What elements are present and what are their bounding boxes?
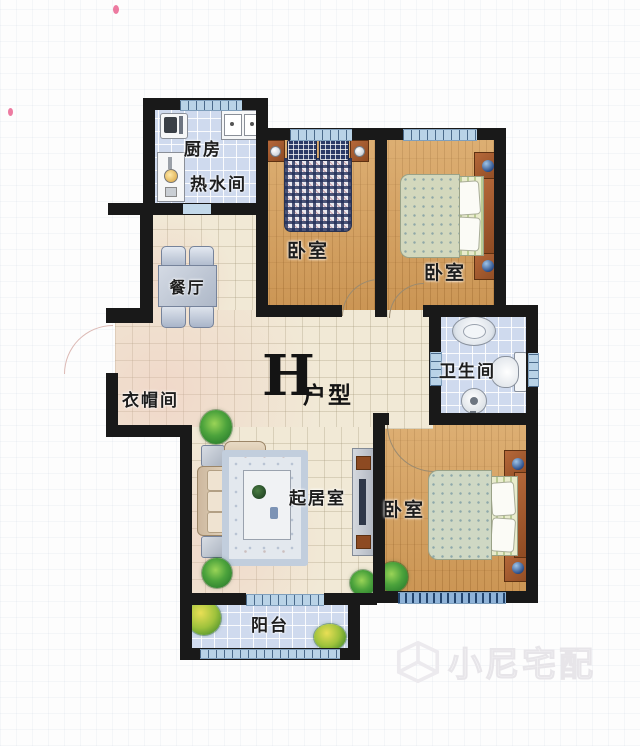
wall <box>526 305 538 603</box>
lamp-icon <box>482 160 494 172</box>
bedroom-top-window <box>290 129 352 141</box>
room-label-kitchen: 厨房 <box>184 135 222 160</box>
room-label-bedroom-right: 卧室 <box>424 258 466 285</box>
lamp-icon <box>512 562 524 574</box>
nightstand <box>350 140 369 162</box>
room-label-living: 起居室 <box>289 484 346 509</box>
wall <box>262 305 342 317</box>
bedroom-right-window <box>403 129 477 141</box>
tv-icon <box>359 479 366 525</box>
shower-head <box>470 397 478 405</box>
room-label-bedroom-top: 卧室 <box>287 236 329 263</box>
kitchen-window <box>180 100 242 111</box>
wall <box>143 98 155 210</box>
plant-icon <box>314 624 346 650</box>
bed-duvet <box>400 174 460 258</box>
sink-drain <box>230 122 234 126</box>
balcony-sliding-door <box>246 594 324 606</box>
wall <box>494 128 506 317</box>
lamp-icon <box>512 458 524 470</box>
wall <box>106 308 153 323</box>
brand-watermark: 小尼宅配 <box>396 637 596 686</box>
wall <box>140 203 153 315</box>
cabinet-box <box>356 456 371 470</box>
plant-icon <box>187 601 221 635</box>
bed-pillow <box>490 517 516 553</box>
room-label-bathroom: 卫生间 <box>439 357 496 382</box>
lamp-icon <box>482 260 494 272</box>
scan-speck <box>113 5 119 14</box>
room-label-bedroom-bottom: 卧室 <box>383 495 425 522</box>
lamp-icon <box>270 146 281 157</box>
dining-table: 餐厅 <box>158 265 217 307</box>
wall <box>180 425 192 660</box>
cabinet-box <box>356 535 371 549</box>
wall <box>324 593 377 605</box>
wall <box>180 593 246 605</box>
scan-speck <box>8 108 13 116</box>
room-label-water-heater: 热水间 <box>190 170 247 195</box>
water-heater <box>157 152 185 202</box>
heater-knob <box>165 187 177 197</box>
bed-pillow <box>490 481 516 517</box>
table-decor <box>270 507 278 519</box>
tv-cabinet <box>352 448 374 556</box>
bathroom-window <box>528 353 539 387</box>
room-label-dining: 餐厅 <box>169 274 205 298</box>
balcony-window <box>200 649 340 659</box>
table-plant-icon <box>252 485 266 499</box>
floor-plan: 餐厅 <box>0 0 640 746</box>
bathroom-sink <box>452 316 496 346</box>
kitchen-door-opening <box>183 204 211 214</box>
lamp-icon <box>354 146 365 157</box>
room-label-cloakroom: 衣帽间 <box>122 386 179 411</box>
bed-duvet <box>284 158 352 232</box>
plant-icon <box>202 558 232 588</box>
wall <box>375 128 387 317</box>
brand-cube-logo-icon <box>396 640 440 684</box>
bed-pillow <box>319 140 349 161</box>
dining-chair <box>161 304 186 328</box>
appliance-door-icon <box>164 117 177 133</box>
heater-pipe <box>168 157 172 169</box>
coffee-table <box>243 470 291 540</box>
bed-top <box>284 138 350 230</box>
unit-type-label: 户型 <box>303 376 353 410</box>
wall <box>433 413 538 425</box>
dining-chair <box>189 304 214 328</box>
bedroom-bottom-window <box>398 592 506 604</box>
sink-bowl <box>463 324 486 339</box>
entry-door-arc <box>64 325 113 374</box>
bed-pillow <box>287 140 317 161</box>
wall <box>256 98 268 317</box>
brand-watermark-text: 小尼宅配 <box>448 637 596 686</box>
appliance-handle <box>179 116 183 134</box>
room-label-balcony: 阳台 <box>251 611 289 636</box>
bed-duvet <box>428 470 492 560</box>
plant-icon <box>200 410 232 444</box>
heater-gauge <box>164 169 178 183</box>
sink-drain <box>250 122 254 126</box>
nightstand <box>266 140 285 162</box>
